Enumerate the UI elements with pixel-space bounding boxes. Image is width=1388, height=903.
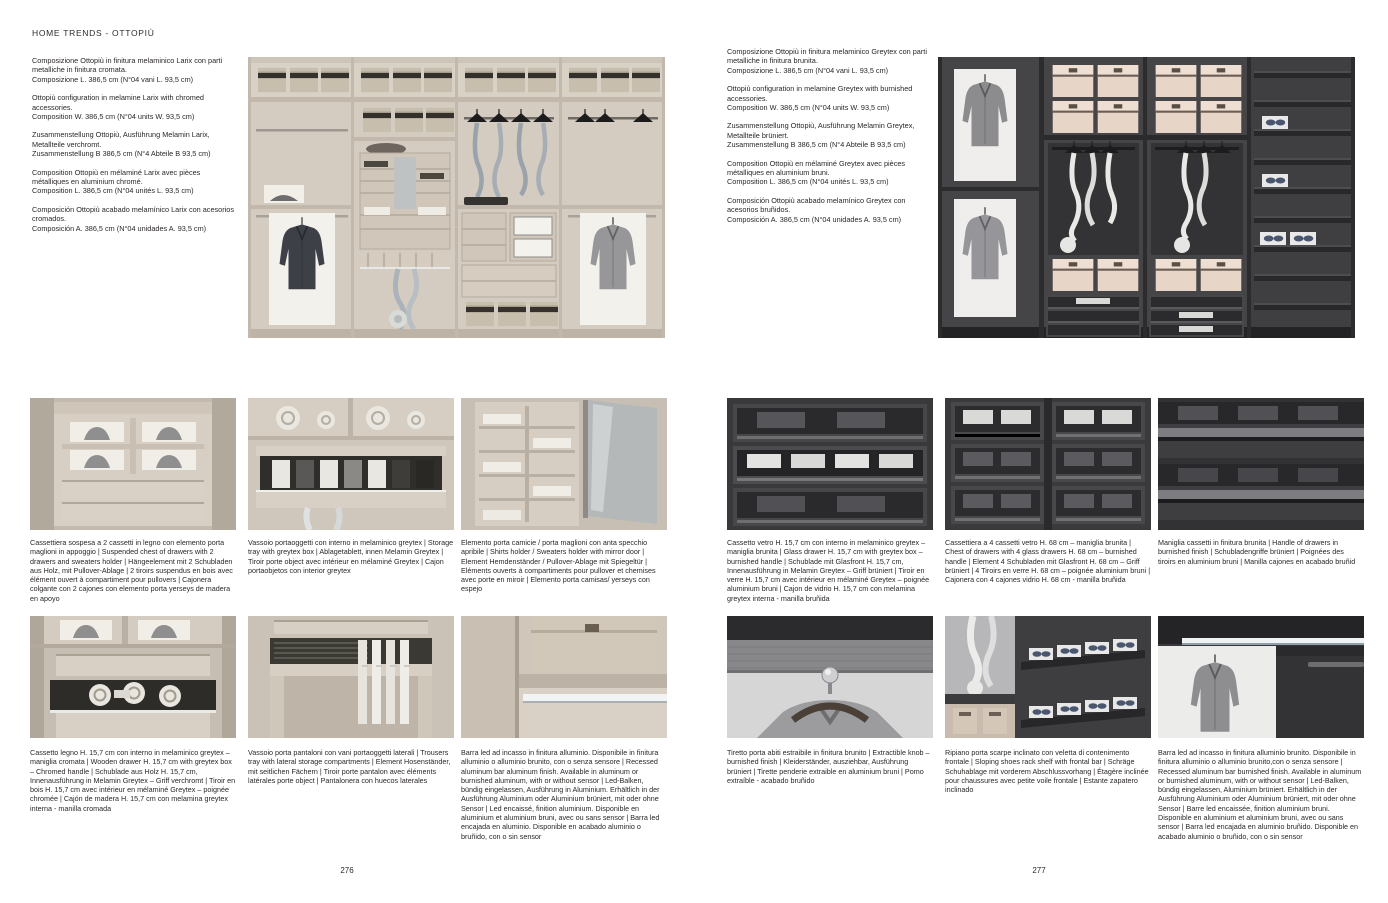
detail-image-mirror-door-element	[461, 398, 667, 530]
caption-suspended-chest: Cassettiera sospesa a 2 cassetti in legn…	[30, 538, 236, 603]
intro-paragraph-de: Zusammenstellung Ottopiù, Ausführung Mel…	[727, 121, 929, 149]
hero-image-larix-composition	[248, 57, 665, 338]
page-right: Composizione Ottopiù in finitura melamin…	[694, 0, 1388, 903]
intro-paragraph-de: Zusammenstellung Ottopiù, Ausführung Mel…	[32, 130, 234, 158]
caption-shoe-rack: Ripiano porta scarpe inclinato con velet…	[945, 748, 1151, 794]
detail-image-trousers-tray	[248, 616, 454, 738]
detail-image-shoe-rack	[945, 616, 1151, 738]
detail-image-burnished-handle	[1158, 398, 1364, 530]
caption-extractible-knob: Tiretto porta abiti estraibile in finitu…	[727, 748, 933, 785]
intro-paragraph-it: Composizione Ottopiù in finitura melamin…	[727, 47, 929, 75]
intro-paragraph-es: Composición Ottopiù acabado melamínico L…	[32, 205, 234, 233]
hero-image-larix	[248, 57, 665, 338]
caption-wooden-drawer: Cassetto legno H. 15,7 cm con interno in…	[30, 748, 236, 813]
caption-led-bar-aluminum: Barra led ad incasso in finitura allumin…	[461, 748, 665, 841]
detail-image-extractible-knob	[727, 616, 933, 738]
caption-glass-drawer: Cassetto vetro H. 15,7 cm con interno in…	[727, 538, 933, 603]
detail-image-storage-tray	[248, 398, 454, 530]
detail-image-glass-chest	[945, 398, 1151, 530]
intro-text-block: Composizione Ottopiù in finitura melamin…	[727, 47, 929, 233]
catalog-spread: HOME TRENDS - OTTOPIÙ Composizione Ottop…	[0, 0, 1388, 903]
intro-paragraph-fr: Composition Ottopiù en mélaminé Greytex …	[727, 159, 929, 187]
page-title: HOME TRENDS - OTTOPIÙ	[32, 28, 155, 38]
intro-paragraph-en: Ottopiù configuration in melamine Larix …	[32, 93, 234, 121]
page-number: 276	[334, 866, 360, 875]
caption-trousers-tray: Vassoio porta pantaloni con vani portaog…	[248, 748, 454, 785]
page-number: 277	[1026, 866, 1052, 875]
page-left: HOME TRENDS - OTTOPIÙ Composizione Ottop…	[0, 0, 694, 903]
intro-paragraph-en: Ottopiù configuration in melamine Greyte…	[727, 84, 929, 112]
detail-image-glass-drawer	[727, 398, 933, 530]
detail-image-suspended-chest	[30, 398, 236, 530]
caption-led-bar-burnished: Barra led ad incasso in finitura allumin…	[1158, 748, 1362, 841]
intro-paragraph-es: Composición Ottopiù acabado melamínico G…	[727, 196, 929, 224]
intro-text-block: Composizione Ottopiù in finitura melamin…	[32, 56, 234, 242]
intro-paragraph-fr: Composition Ottopiù en mélaminé Larix av…	[32, 168, 234, 196]
caption-glass-chest: Cassettiera a 4 cassetti vetro H. 68 cm …	[945, 538, 1151, 584]
hero-image-greytex-composition	[938, 57, 1355, 338]
caption-burnished-handle: Maniglia cassetti in finitura brunita | …	[1158, 538, 1362, 566]
detail-image-wooden-drawer	[30, 616, 236, 738]
detail-image-led-bar-aluminum	[461, 616, 667, 738]
caption-storage-tray: Vassoio portaoggetti con interno in mela…	[248, 538, 454, 575]
caption-mirror-door-element: Elemento porta camicie / porta maglioni …	[461, 538, 665, 594]
detail-image-led-bar-burnished	[1158, 616, 1364, 738]
intro-paragraph-it: Composizione Ottopiù in finitura melamin…	[32, 56, 234, 84]
